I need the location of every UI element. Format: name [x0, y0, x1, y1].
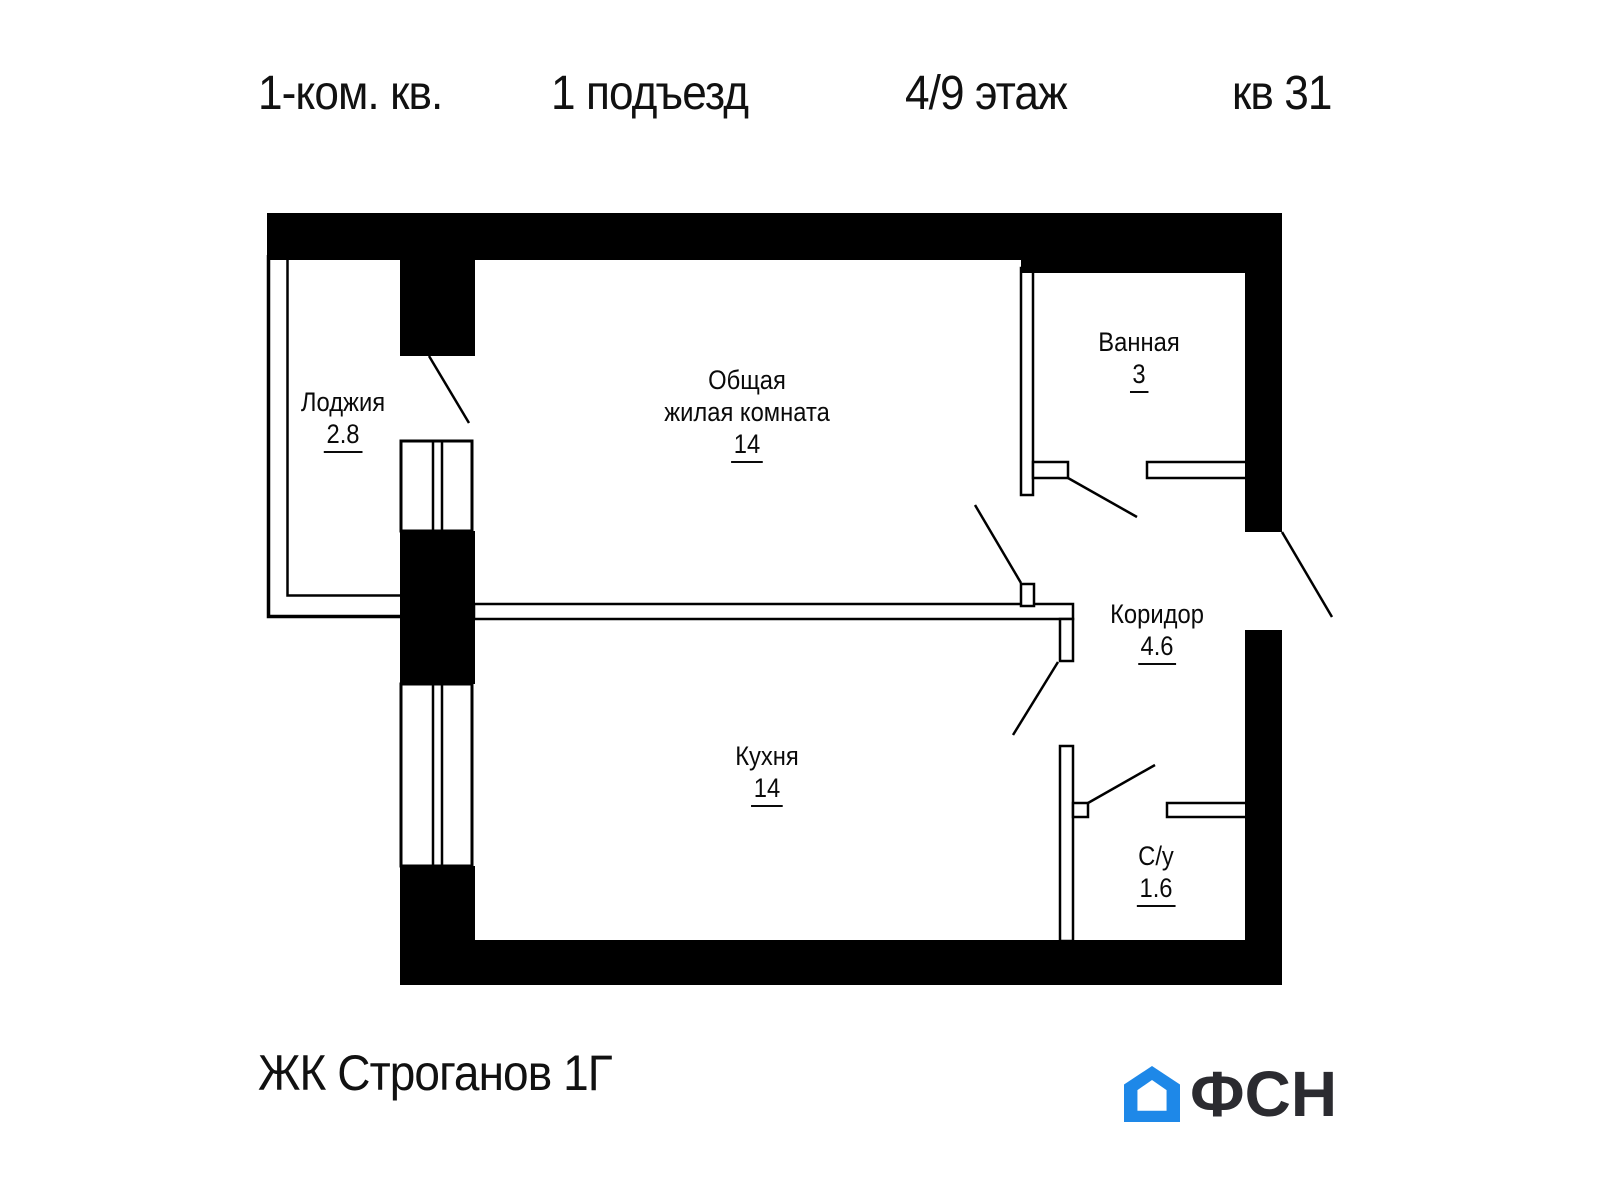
door-swing-balcony	[429, 356, 469, 423]
window-balcony-upper	[401, 441, 472, 531]
room-name: Ванная	[1098, 326, 1179, 358]
wall-left-pier-2	[400, 531, 475, 684]
wall-wc-left	[1060, 746, 1073, 941]
logo-text: ФСН	[1190, 1062, 1337, 1126]
wall-bathroom-bottom	[1147, 462, 1247, 478]
wall-top	[267, 213, 1282, 260]
jamb-living-door	[1021, 584, 1034, 606]
room-area: 4.6	[1138, 630, 1176, 665]
room-area: 14	[731, 428, 763, 463]
room-label-bathroom: Ванная 3	[1098, 326, 1179, 393]
floorplan-page: 1-ком. кв. 1 подъезд 4/9 этаж кв 31	[0, 0, 1600, 1200]
wall-left-pier-1	[400, 260, 475, 356]
room-label-loggia: Лоджия 2.8	[301, 386, 385, 453]
door-swing-living	[975, 505, 1021, 583]
jamb-wc-door	[1073, 803, 1088, 817]
wall-kitchen-corridor	[1060, 619, 1073, 661]
house-icon	[1124, 1066, 1180, 1122]
floorplan-drawing	[0, 0, 1600, 1200]
jamb-bathroom-door	[1033, 462, 1068, 478]
room-name: Коридор	[1110, 598, 1204, 630]
room-area: 3	[1130, 358, 1149, 393]
room-area: 1.6	[1137, 872, 1175, 907]
room-label-corridor: Коридор 4.6	[1110, 598, 1204, 665]
room-name: Кухня	[735, 740, 799, 772]
room-area: 2.8	[324, 418, 362, 453]
room-name: Общая	[664, 364, 830, 396]
window-balcony-lower	[401, 684, 472, 866]
room-name: С/у	[1137, 840, 1175, 872]
complex-name: ЖК Строганов 1Г	[258, 1044, 612, 1102]
door-swing-entry	[1282, 532, 1332, 617]
door-swing-bathroom	[1068, 478, 1137, 517]
wall-bathroom-left	[1021, 268, 1033, 495]
wall-right-upper	[1245, 260, 1282, 532]
company-logo: ФСН	[1124, 1062, 1337, 1126]
wall-top-bathroom-strip	[1021, 260, 1282, 273]
room-label-wc: С/у 1.6	[1137, 840, 1175, 907]
wall-wc-top	[1167, 803, 1247, 817]
room-label-kitchen: Кухня 14	[735, 740, 799, 807]
door-swing-kitchen	[1013, 662, 1058, 735]
door-swing-wc	[1088, 765, 1155, 803]
room-area: 14	[751, 772, 783, 807]
room-name: Лоджия	[301, 386, 385, 418]
wall-living-kitchen-divider	[474, 604, 1073, 619]
wall-right-lower	[1245, 630, 1282, 940]
wall-left-pier-3	[400, 866, 475, 942]
wall-bottom	[400, 940, 1282, 985]
room-name: жилая комната	[664, 396, 830, 428]
room-label-living: Общая жилая комната 14	[664, 364, 830, 463]
